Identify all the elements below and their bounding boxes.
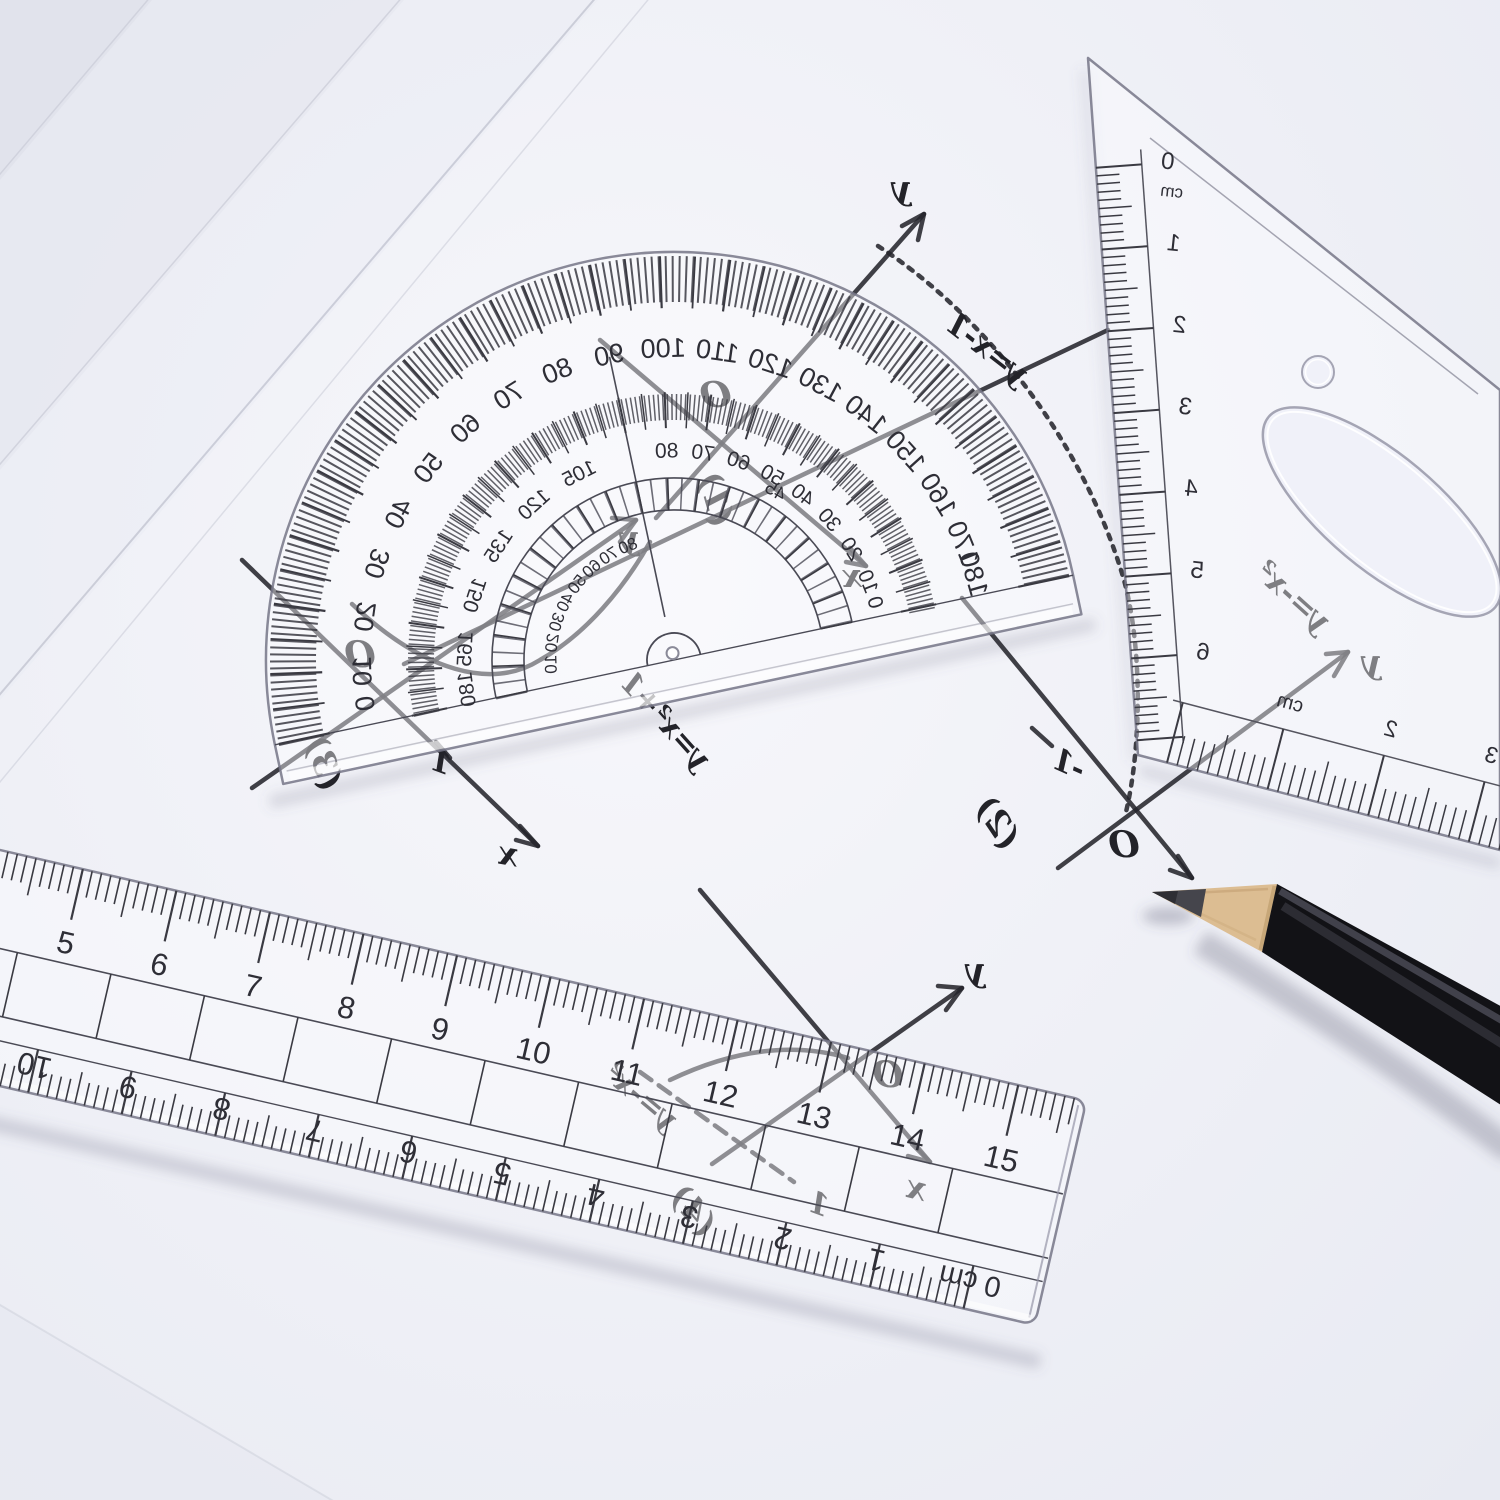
photo-scene: y=x-1Oxy(1)y=-x²Oy-1(2)y=x²+1Oxy1(3)y=-x… [0, 0, 1500, 1500]
triangle-ruler: 0123456cmcm23 [1088, 58, 1500, 855]
pencil-graphite-tip [1152, 891, 1178, 904]
triangle-left-scale-number: 6 [1195, 638, 1211, 666]
protractor-outer-scale-label: 110 [694, 333, 741, 369]
triangle-left-scale-number: 5 [1189, 556, 1205, 584]
pencil [1152, 884, 1500, 1112]
protractor-inner-scale-label: 70 [690, 440, 716, 466]
triangle-left-scale-number: 4 [1183, 474, 1199, 502]
scene-canvas: y=x-1Oxy(1)y=-x²Oy-1(2)y=x²+1Oxy1(3)y=-x… [0, 0, 1500, 1500]
graph2-tick [1032, 728, 1052, 746]
protractor-inner-scale-label: 80 [655, 439, 679, 463]
triangle-left-scale-unit: cm [1160, 181, 1185, 202]
protractor-band-scale-label: 10 [541, 655, 561, 675]
protractor-band-scale-label: 20 [541, 632, 562, 653]
triangle-left-scale-number: 2 [1171, 311, 1187, 339]
graph1-y-label: y [890, 168, 913, 207]
triangle-left-scale-number: 1 [1166, 229, 1182, 257]
protractor-inner-scale-label: 165 [453, 631, 478, 667]
protractor-outer-scale-label: 90 [591, 337, 627, 373]
paper-sheet-corner [0, 1302, 335, 1500]
protractor-inner-scale-label: 180 [453, 670, 481, 708]
protractor-outer-scale-label: 10 [347, 655, 378, 686]
graph3-x-label: x [495, 833, 522, 875]
triangle-left-scale-number: 3 [1177, 393, 1193, 421]
graph4-y-label: y [964, 950, 987, 989]
graph2-id: (2) [967, 789, 1030, 856]
triangle-round-hole [1302, 356, 1334, 388]
protractor-outer-scale-label: 20 [348, 600, 382, 634]
protractor-outer-scale-label: 100 [640, 333, 686, 365]
graph2-origin: O [1108, 824, 1140, 866]
triangle-left-scale-number: 0 [1160, 147, 1176, 175]
